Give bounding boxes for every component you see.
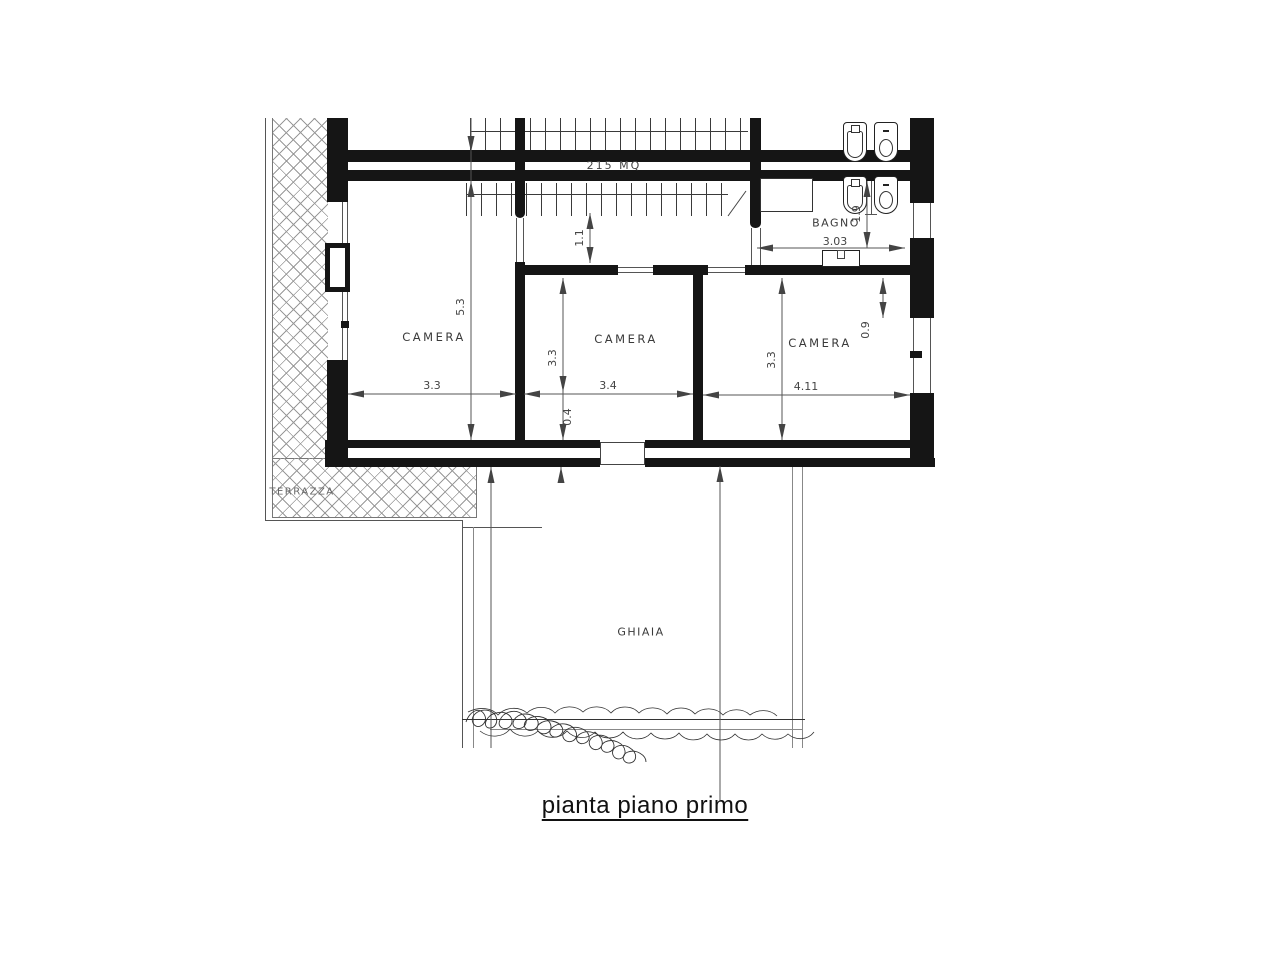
bagno-label: BAGNO bbox=[812, 217, 860, 230]
dim-camera-left-height: 5.3 bbox=[454, 298, 467, 316]
camera-right-label: CAMERA bbox=[788, 336, 851, 350]
dim-camera-middle-lower: 0.4 bbox=[561, 408, 574, 426]
ghiaia-label: GHIAIA bbox=[617, 626, 664, 639]
camera-left-label: CAMERA bbox=[402, 330, 465, 344]
drawing-title: pianta piano primo bbox=[542, 792, 748, 820]
floor-plan-canvas: TERRAZZA bbox=[0, 0, 1280, 960]
area-label: 215 MQ bbox=[587, 159, 642, 172]
dim-camera-middle-width: 3.4 bbox=[599, 379, 617, 392]
dim-corridor-depth: 1.1 bbox=[573, 229, 586, 247]
dim-bagno-width: 3.03 bbox=[823, 235, 848, 248]
dim-camera-middle-height: 3.3 bbox=[546, 349, 559, 367]
dim-camera-right-height: 3.3 bbox=[765, 351, 778, 369]
camera-middle-label: CAMERA bbox=[594, 332, 657, 346]
dim-camera-right-window: 0.9 bbox=[859, 321, 872, 339]
vegetation-squiggle bbox=[466, 710, 646, 763]
dimension-arrowheads bbox=[348, 136, 910, 483]
dim-camera-right-width: 4.11 bbox=[794, 380, 819, 393]
dim-camera-left-width: 3.3 bbox=[423, 379, 441, 392]
